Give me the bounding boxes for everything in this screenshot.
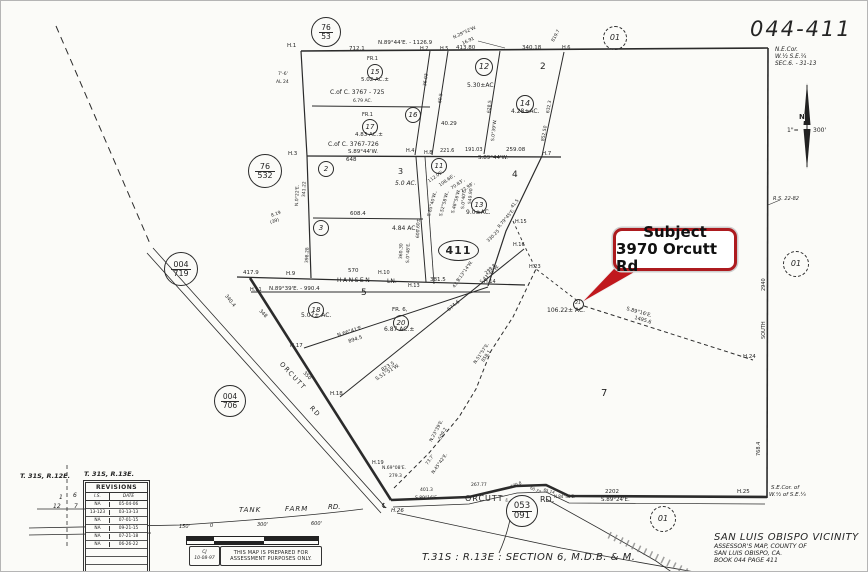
revisions-table: REVISIONS I.S. DATE NA05-04-0613-12303-1… <box>85 482 148 572</box>
map-label: S.E.Cor. of <box>771 486 799 492</box>
map-label: H.1 <box>287 44 296 50</box>
parcel-number-circle: 12 <box>475 58 493 76</box>
map-ref-circle: 01 <box>603 26 627 50</box>
parcel-number-circle: 18 <box>308 302 324 318</box>
map-label: C.of C. 3767 - 725 <box>330 90 385 96</box>
map-label: 360.30 <box>400 243 405 259</box>
ref-circle-top: 76 <box>258 163 272 171</box>
map-ref-circle: 7653 <box>311 17 341 47</box>
map-label: 2 <box>540 63 546 72</box>
scale-tick: 0 <box>210 523 213 529</box>
map-label: 600.60± <box>417 218 422 238</box>
map-label: 340.4 <box>223 294 236 308</box>
map-label: H.8 <box>424 151 432 156</box>
map-label: ORCUTT <box>465 495 504 503</box>
map-label: 768.4 <box>757 442 762 456</box>
map-label: 7'-6' <box>278 73 288 78</box>
map-label: 267.77 <box>471 484 487 489</box>
map-label: 4.84 AC. <box>392 226 417 232</box>
map-label: N.69°08'E. <box>382 467 406 472</box>
map-label: 570 <box>348 269 359 275</box>
map-label: 60.5 <box>439 93 445 104</box>
map-label: 191.03 <box>465 148 483 153</box>
map-label: 259.08 <box>506 148 525 154</box>
map-label: R.S. 22-82 <box>773 197 799 202</box>
map-label: 2940 <box>762 278 767 291</box>
map-label: H.25 <box>737 490 750 496</box>
map-label: HANSEN <box>337 278 371 284</box>
map-label: 2202 <box>605 490 619 496</box>
map-label: S.0°39'W. <box>492 119 499 141</box>
map-label: S.52°58'W., <box>440 191 451 217</box>
map-label: H.15 <box>515 220 527 225</box>
map-ref-circle: 76532 <box>248 154 282 188</box>
ref-circle-bottom: 719 <box>171 269 190 278</box>
map-label: 5.0 AC. <box>395 181 417 187</box>
parcel-number-circle: 17 <box>362 119 378 135</box>
map-label: S.89°24'E. <box>601 498 630 504</box>
map-label: S.0°40'E. <box>462 188 468 209</box>
map-label: R.79°45'E. <box>498 209 517 230</box>
township-left: T. 31S, R.12E. <box>20 472 70 480</box>
revision-is: NA <box>86 502 110 507</box>
corner-note-line: W.½ S.E.¼ <box>775 54 816 61</box>
scale-tick: 600' <box>311 521 322 527</box>
revision-row <box>86 557 147 565</box>
map-label: RD <box>308 405 321 419</box>
map-label: (39) <box>270 219 280 226</box>
map-label: 632.3 <box>547 100 554 113</box>
revision-date: 03-13-13 <box>110 510 147 515</box>
revision-date: 05-04-06 <box>110 502 147 507</box>
map-label: 628.5 <box>488 100 494 113</box>
map-label: AL 24 <box>276 81 289 86</box>
revision-date: 09-21-15 <box>110 526 147 531</box>
map-label: H.18 <box>330 392 343 398</box>
map-label: H.6 <box>562 46 570 51</box>
drafter-date: 10-08-97 <box>194 556 214 562</box>
map-ref-circle: 01 <box>783 251 809 277</box>
ref-circle-top: 01 <box>610 34 620 42</box>
parcel-number-circle: 3 <box>313 220 329 236</box>
parcel-number-circle: 20 <box>393 315 409 331</box>
map-label: H.16 <box>513 243 525 248</box>
map-label: S.89°44'W. <box>348 150 378 156</box>
parcel-number-circle: 16 <box>405 107 421 123</box>
map-label: 1"= <box>787 128 799 134</box>
revision-row: NA07-01-15 <box>86 517 147 525</box>
map-label: S.0°48'E. <box>407 242 412 263</box>
revision-is: NA <box>86 518 110 523</box>
map-label: H.26 <box>391 509 404 515</box>
corner-note-line: N.E.Cor. <box>775 47 816 54</box>
map-label: H.3 <box>288 152 297 158</box>
revisions-header: I.S. DATE <box>86 493 147 501</box>
parcel-number-circle: 15 <box>367 64 383 80</box>
subject-callout: Subject 3970 Orcutt Rd <box>613 228 737 271</box>
map-label: 894.5 <box>348 336 363 345</box>
map-label: 3 <box>398 168 403 176</box>
disclaimer-box: THIS MAP IS PREPARED FOR ASSESSMENT PURP… <box>220 546 322 566</box>
map-label: N <box>799 114 805 121</box>
map-label: 73.7' <box>426 455 436 467</box>
map-label: FR. 6, <box>392 308 408 314</box>
revisions-col-is: I.S. <box>86 493 110 500</box>
vicinity-sub: ASSESSOR'S MAP, COUNTY OF <box>714 543 859 550</box>
map-label: H.24 <box>743 355 756 361</box>
parcel-number-circle: 21 <box>573 299 584 310</box>
map-label: 43.7' <box>453 278 463 290</box>
ref-circle-bottom: 091 <box>512 511 532 521</box>
map-ref-circle: 053091 <box>506 495 538 527</box>
map-label: 40.29 <box>441 122 457 128</box>
revision-date: 06-26-22 <box>110 542 147 547</box>
sheet-number: 044-411 <box>750 17 852 41</box>
map-label: 608.4 <box>350 212 366 218</box>
corner-note-line: SEC.6. - 31-13 <box>775 61 816 68</box>
township-right: T. 31S, R.13E. <box>84 470 134 478</box>
map-label: 398.28 <box>306 247 311 263</box>
ref-circle-top: 053 <box>512 502 532 511</box>
parcel-number-circle: 14 <box>516 95 534 113</box>
map-label: 648 <box>346 158 357 164</box>
map-label: W.½ of S.E.¼ <box>769 493 806 499</box>
revision-is: NA <box>86 542 110 547</box>
map-label: 401.3 <box>420 489 433 494</box>
map-label: RD. <box>540 496 554 504</box>
map-label: 7 <box>601 389 607 399</box>
page-index-oval: 411 <box>438 240 479 261</box>
map-label: 674.6 <box>447 300 461 313</box>
revision-is: NA <box>86 534 110 539</box>
map-label: H.2 <box>420 47 428 52</box>
map-label: 5.30±AC. <box>467 83 495 89</box>
north-arrow-icon <box>804 83 811 169</box>
subject-callout-address: 3970 Orcutt Rd <box>616 241 734 275</box>
map-label: 341.22 <box>303 181 308 197</box>
vicinity-block: SAN LUIS OBISPO VICINITY ASSESSOR'S MAP,… <box>714 532 859 564</box>
revision-row <box>86 565 147 572</box>
map-label: 819.7 <box>552 30 562 43</box>
revision-row: NA05-04-06 <box>86 501 147 509</box>
parcel-number-circle: 11 <box>431 158 447 174</box>
drafter-stamp: CJ 10-08-97 <box>189 546 220 566</box>
map-label: H.5 <box>440 47 448 52</box>
revisions-rows: NA05-04-0613-12303-13-13NA07-01-15NA09-2… <box>86 501 147 572</box>
map-label: 381.5 <box>430 278 446 284</box>
map-label: 330.25 <box>487 230 501 244</box>
map-label: H.14 <box>484 280 496 285</box>
vicinity-sub: SAN LUIS OBISPO, CA. <box>714 550 859 557</box>
revision-row: NA09-21-15 <box>86 525 147 533</box>
scale-tick: 150' <box>179 524 190 530</box>
map-label: H.13 <box>408 284 420 289</box>
ref-circle-top: 01 <box>658 515 668 523</box>
map-label: LN. <box>387 279 397 285</box>
map-label: FARM <box>285 506 308 513</box>
revision-is: 13-123 <box>86 510 110 515</box>
map-ref-circle: 01 <box>650 506 676 532</box>
map-label: H.4 <box>406 149 414 154</box>
map-label: SOUTH <box>762 321 767 339</box>
map-label: H.10 <box>378 271 390 276</box>
parcel-number-circle: 2 <box>318 161 334 177</box>
map-label: H.9 <box>286 272 295 278</box>
map-label: FR.1 <box>362 113 373 118</box>
map-label: 350 <box>301 371 311 381</box>
map-label: 279.3 <box>389 475 402 480</box>
section-label: T.31S : R.13E : SECTION 6, M.D.B. & M. <box>422 552 635 563</box>
ref-circle-bottom: 706 <box>221 401 239 410</box>
ref-circle-top: 76 <box>319 24 333 32</box>
parcel-number-circle: 13 <box>471 197 487 213</box>
map-label: 413.80 <box>456 46 475 52</box>
map-label: H.7 <box>542 152 551 158</box>
map-label: 417.9 <box>243 271 259 277</box>
map-label: 4 <box>512 171 518 180</box>
revision-row: NA07-21-18 <box>86 533 147 541</box>
vicinity-title: SAN LUIS OBISPO VICINITY <box>714 532 859 543</box>
map-label: 6 <box>73 493 77 499</box>
map-ref-circle: 004719 <box>164 252 198 286</box>
subject-callout-title: Subject <box>643 224 707 241</box>
ref-circle-top: 004 <box>221 393 239 401</box>
map-label: 5 <box>361 289 367 298</box>
map-label: 340.18 <box>522 46 541 52</box>
assessor-map-page: H.1712.1N.89°44'E. - 1126.9H.2H.5413.803… <box>0 0 868 572</box>
map-label: 221.6 <box>440 149 454 154</box>
map-label: TANK <box>239 507 261 514</box>
map-label: N.89°39'E. - 990.4 <box>269 287 320 293</box>
map-ref-circle: 004706 <box>214 385 246 417</box>
map-label: N.0°22'E. <box>296 185 301 206</box>
map-label: 60.77 <box>529 486 541 494</box>
revision-is: NA <box>86 526 110 531</box>
disclaimer-line: ASSESSMENT PURPOSES ONLY. <box>230 556 312 563</box>
vicinity-sub: BOOK 044 PAGE 411 <box>714 557 859 564</box>
map-label: 1 <box>59 495 63 501</box>
revision-row: 13-12303-13-13 <box>86 509 147 517</box>
ref-circle-bottom: 53 <box>319 32 333 41</box>
map-label: 348 <box>257 309 267 319</box>
map-label: S.89°44'W. <box>478 156 508 162</box>
map-label: FR.1 <box>367 57 378 62</box>
ref-circle-top: 01 <box>791 260 801 268</box>
ref-circle-top: 004 <box>171 261 190 269</box>
ne-corner-note: N.E.Cor. W.½ S.E.¼ SEC.6. - 31-13 <box>775 47 816 68</box>
ref-circle-bottom: 532 <box>255 171 274 180</box>
map-label: 6.79 AC. <box>353 100 372 105</box>
revisions-col-date: DATE <box>110 493 147 500</box>
scale-tick: 300' <box>257 522 268 528</box>
map-label: C.of C. 3767-726 <box>328 142 379 148</box>
map-label: 170.8 <box>510 481 522 489</box>
map-label: 852.50 <box>542 125 549 141</box>
map-label: 300' <box>813 128 826 134</box>
map-label: 12 <box>53 504 61 510</box>
revision-row: NA06-26-22 <box>86 541 147 549</box>
map-label: S.85°40'W., <box>428 191 439 217</box>
map-label: S.89°16'E. <box>415 497 439 502</box>
revision-date: 07-01-15 <box>110 518 147 523</box>
map-label: 7 <box>74 504 78 510</box>
revision-row <box>86 549 147 557</box>
revision-date: 07-21-18 <box>110 534 147 539</box>
revisions-title: REVISIONS <box>86 483 147 493</box>
map-label: H.23 <box>529 265 541 270</box>
map-label: H.11 <box>250 288 262 293</box>
map-label: 36.03 <box>424 73 430 86</box>
map-label: ℄ <box>382 503 387 510</box>
map-label: RD. <box>328 504 340 511</box>
map-label: H.17 <box>290 344 303 350</box>
map-label: N.84°46'E. <box>554 495 575 499</box>
scale-bar <box>186 536 319 545</box>
map-label: 712.1 <box>349 47 365 53</box>
